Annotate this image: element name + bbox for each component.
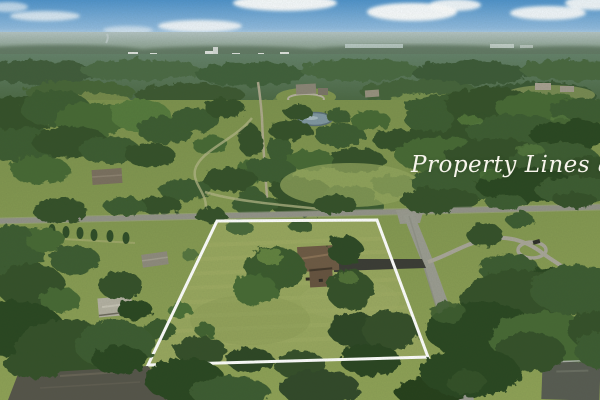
photo-canvas xyxy=(0,0,600,400)
aerial-photo: Property Lines are Approximate xyxy=(0,0,600,400)
photo-grain xyxy=(0,0,600,400)
